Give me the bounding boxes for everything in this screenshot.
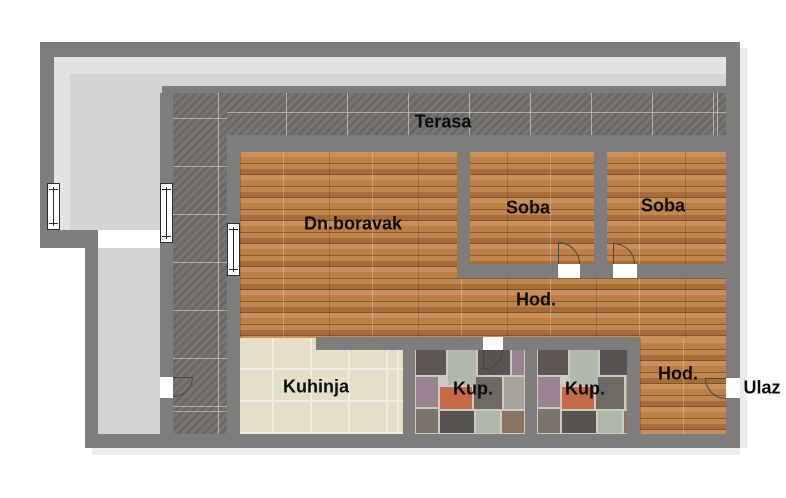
walkway-left-column-upper	[54, 57, 162, 230]
window-cap	[162, 189, 171, 190]
walkway-highlight-top	[54, 57, 726, 74]
wall-bathroom1-left	[403, 348, 415, 434]
wall-terrace-top-divider	[162, 86, 726, 93]
window-glass-line	[53, 187, 54, 226]
floor-plan: Terasa Dn.boravak Soba Soba Hod. Kuhinja…	[0, 0, 786, 498]
room-label-hodnik-1: Hod.	[516, 290, 556, 311]
window-cap	[49, 189, 58, 190]
room-label-soba-1: Soba	[506, 198, 550, 219]
wall-outer-top	[40, 42, 740, 57]
wall-outer-bottom	[85, 434, 740, 448]
room-label-kupatilo-2: Kup.	[565, 379, 605, 400]
window-glass-line	[233, 227, 234, 272]
door-gap-bathroom1	[483, 337, 503, 350]
door-gap-soba2	[613, 264, 637, 278]
door-gap-soba1	[558, 264, 580, 278]
wall-kitchen-stub	[316, 337, 403, 350]
window-cap	[49, 223, 58, 224]
window-icon-terrace	[160, 183, 173, 243]
room-label-dnevni-boravak: Dn.boravak	[304, 214, 402, 235]
wall-soba1-soba2	[594, 152, 607, 264]
wall-bathrooms-top	[403, 337, 640, 350]
wall-soba-bottom	[457, 264, 726, 278]
room-label-terasa: Terasa	[415, 112, 472, 133]
window-glass-line	[166, 187, 167, 239]
living-hall-floor	[240, 152, 726, 338]
wall-outer-left-lower	[85, 230, 98, 448]
room-label-kuhinja: Kuhinja	[283, 377, 349, 398]
room-label-soba-2: Soba	[641, 196, 685, 217]
door-gap-entrance	[726, 378, 740, 398]
door-gap-terrace	[160, 377, 173, 398]
wall-interior-top	[227, 135, 726, 152]
window-cap	[229, 229, 238, 230]
window-icon-livingroom	[227, 223, 240, 276]
wall-bathroom2-right	[627, 348, 640, 434]
wall-livingroom-soba1	[457, 152, 470, 264]
walkway-left-column-lower	[98, 248, 162, 434]
wall-bathroom-divider	[525, 348, 537, 434]
wall-livingroom-left	[227, 135, 240, 434]
window-cap	[229, 269, 238, 270]
room-label-ulaz: Ulaz	[743, 378, 780, 399]
shadow-bottom	[92, 448, 740, 455]
window-cap	[162, 236, 171, 237]
room-label-kupatilo-1: Kup.	[453, 379, 493, 400]
window-icon-left-outer	[47, 183, 60, 230]
room-label-hodnik-2: Hod.	[658, 364, 698, 385]
